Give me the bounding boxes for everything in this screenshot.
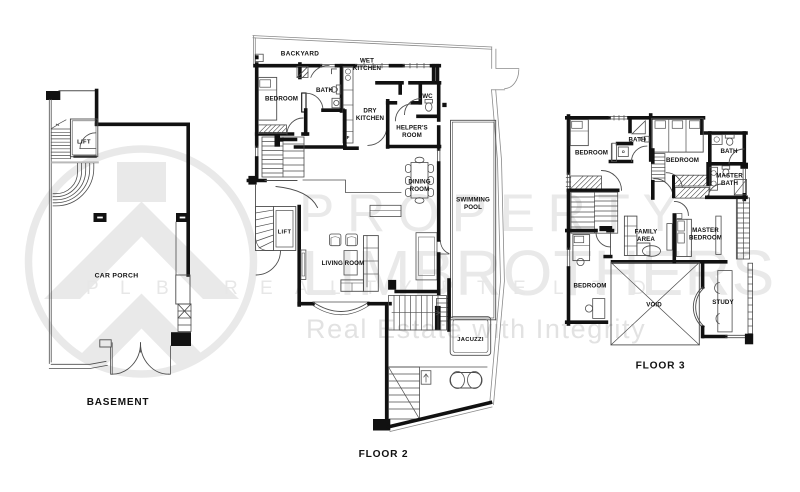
svg-text:LIFT: LIFT (77, 140, 91, 146)
svg-text:POOL: POOL (464, 204, 482, 211)
svg-text:DRY: DRY (363, 108, 377, 115)
svg-text:BATH: BATH (720, 148, 738, 155)
svg-text:BATH: BATH (721, 180, 739, 187)
svg-text:BEDROOM: BEDROOM (575, 150, 608, 157)
svg-text:LIVING ROOM: LIVING ROOM (322, 260, 365, 267)
svg-text:WC: WC (422, 93, 433, 100)
svg-text:STUDY: STUDY (712, 299, 734, 306)
svg-text:BEDROOM: BEDROOM (265, 96, 298, 103)
svg-text:HELPER'S: HELPER'S (396, 125, 428, 132)
svg-text:F: F (347, 135, 350, 140)
svg-text:CAR PORCH: CAR PORCH (95, 273, 139, 280)
svg-text:JACUZZI: JACUZZI (457, 337, 484, 343)
svg-text:SWIMMING: SWIMMING (456, 197, 490, 204)
svg-text:AREA: AREA (637, 236, 655, 243)
svg-text:BACKYARD: BACKYARD (281, 51, 319, 58)
svg-text:BEDROOM: BEDROOM (689, 234, 722, 241)
svg-text:MASTER: MASTER (692, 227, 719, 234)
svg-text:WET: WET (360, 58, 374, 65)
svg-text:VOID: VOID (646, 302, 662, 309)
svg-text:BASEMENT: BASEMENT (87, 397, 150, 408)
svg-text:KITCHEN: KITCHEN (353, 65, 382, 72)
svg-text:DINING: DINING (408, 179, 430, 186)
svg-text:LIFT: LIFT (278, 230, 292, 236)
svg-text:MASTER: MASTER (716, 173, 743, 180)
svg-text:KITCHEN: KITCHEN (356, 115, 385, 122)
svg-text:BATH: BATH (316, 87, 334, 94)
svg-text:FAMILY: FAMILY (635, 229, 658, 236)
svg-text:BEDROOM: BEDROOM (666, 157, 699, 164)
svg-text:ROOM: ROOM (410, 186, 430, 193)
svg-text:ROOM: ROOM (402, 132, 422, 139)
svg-text:FLOOR 2: FLOOR 2 (359, 449, 409, 460)
svg-text:FLOOR 3: FLOOR 3 (636, 361, 686, 372)
svg-text:BATH: BATH (628, 137, 646, 144)
svg-text:BEDROOM: BEDROOM (573, 283, 606, 290)
